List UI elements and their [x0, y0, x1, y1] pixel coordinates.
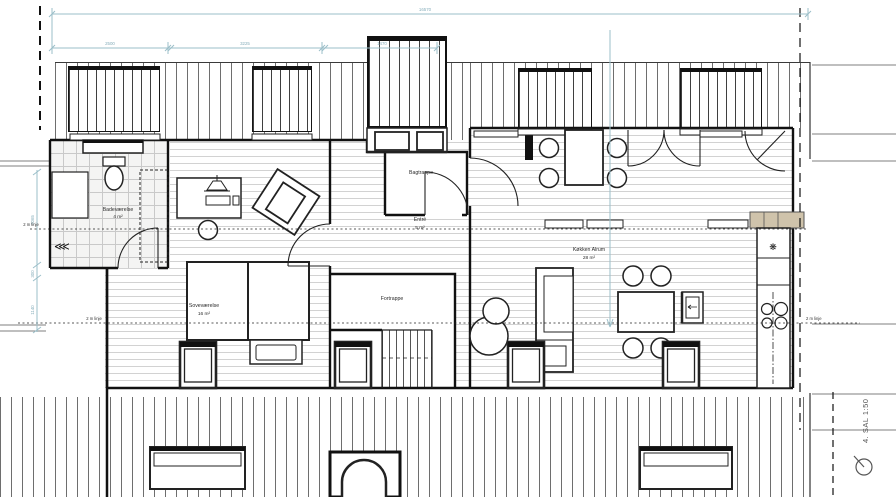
dim-left3: 1140	[30, 305, 35, 315]
bath-wardrobe	[140, 170, 168, 262]
label-entry-area: 5 m²	[415, 225, 425, 231]
dining-table-1	[565, 130, 603, 185]
note-2m-left-lower: 2 m linje	[86, 316, 102, 321]
dim-left2: 300	[30, 270, 35, 278]
label-bathroom: Badeværelse	[103, 207, 134, 213]
burner	[775, 317, 787, 329]
reference-lines	[18, 6, 860, 497]
dining-table-2	[618, 292, 674, 332]
note-2m-right: 2 m linje	[806, 316, 822, 321]
dim-seg3: 1470	[377, 41, 387, 46]
label-bedroom: Soveværelse	[189, 303, 219, 309]
floor-plan-drawing: ⋘	[0, 0, 896, 497]
dim-overall: 16570	[419, 7, 432, 12]
side-table	[199, 221, 218, 240]
stair-structure	[382, 330, 432, 388]
windows	[70, 128, 762, 228]
burner	[775, 303, 788, 316]
armchair	[253, 169, 320, 235]
note-2m-left-upper: 2 m linje	[23, 222, 39, 227]
counter-niche	[750, 212, 804, 228]
north-marker-icon	[854, 456, 872, 475]
floor-plan-sheet: ⋘	[0, 0, 896, 497]
label-front-stairs: Fortrappe	[381, 296, 404, 302]
toilet-tank	[103, 157, 125, 166]
dim-seg1: 2500	[105, 41, 115, 46]
label-bedroom-area: 16 m²	[198, 311, 211, 317]
burner	[762, 304, 773, 315]
label-bathroom-area: 4 m²	[113, 214, 123, 220]
drawing-title: 4. SAL 1:50	[861, 399, 870, 443]
kitchen-counter	[757, 228, 790, 388]
bed-right	[248, 262, 309, 340]
label-kitchen: Køkken Alrum	[573, 247, 605, 253]
bath-cabinet	[52, 172, 88, 218]
label-kitchen-area: 28 m²	[583, 255, 596, 261]
plant-small	[483, 298, 509, 324]
bed-left	[187, 262, 248, 340]
bottom-skylights	[150, 447, 732, 497]
label-back-stairs: Bagtrappe	[409, 170, 433, 176]
shower-icon: ⋘	[54, 241, 70, 253]
toilet-bowl	[105, 166, 123, 190]
label-entry: Entré	[414, 217, 427, 223]
title-block: 4. SAL 1:50	[854, 399, 872, 475]
dim-seg2: 3225	[240, 41, 250, 46]
freezer-icon: ❋	[769, 242, 777, 252]
oven	[682, 292, 703, 323]
